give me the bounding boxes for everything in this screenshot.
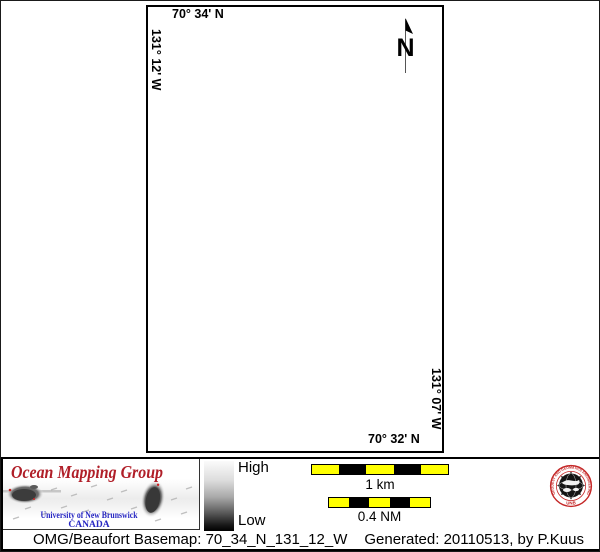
coordinate-label-bottom: 70° 32' N [368, 433, 420, 446]
scalebar-nm [328, 497, 431, 508]
colorbar-low-label: Low [238, 513, 266, 528]
colorbar-high-label: High [238, 460, 269, 475]
coordinate-label-left: 131° 12' W [149, 29, 162, 90]
scalebar-segment [349, 498, 369, 507]
scalebar-segment [394, 465, 421, 474]
scalebar-km [311, 464, 449, 475]
seal-acronym: UNB [566, 500, 576, 505]
north-arrow-icon: N [386, 15, 426, 77]
coordinate-label-right: 131° 07' W [429, 368, 442, 429]
scalebar-segment [329, 498, 349, 507]
scalebar-segment [421, 465, 448, 474]
caption-basemap-text: OMG/Beaufort Basemap: 70_34_N_131_12_W [33, 532, 347, 548]
scalebar-segment [369, 498, 389, 507]
depth-colorbar [204, 461, 234, 531]
scalebar-km-label: 1 km [311, 478, 449, 492]
unb-gge-seal: GEODESY AND GEOMATICS ENGINEERING UNB [549, 463, 593, 509]
scalebar-segment [410, 498, 430, 507]
scalebar-segment [390, 498, 410, 507]
basemap-page: 70° 34' N 131° 12' W 131° 07' W 70° 32' … [0, 0, 600, 552]
coordinate-label-top: 70° 34' N [172, 8, 224, 21]
caption-row: OMG/Beaufort Basemap: 70_34_N_131_12_W G… [33, 532, 593, 548]
north-arrow-letter: N [396, 34, 414, 62]
scalebar-segment [339, 465, 366, 474]
omg-logo-title: Ocean Mapping Group [11, 462, 163, 482]
scalebar-segment [312, 465, 339, 474]
omg-logo-country: CANADA [68, 520, 109, 530]
caption-generated-text: Generated: 20110513, by P.Kuus [364, 532, 584, 548]
omg-logo: Ocean Mapping Group University of New Br… [3, 459, 200, 530]
scalebar-nm-label: 0.4 NM [328, 510, 431, 524]
footer-panel: Ocean Mapping Group University of New Br… [1, 457, 600, 551]
scalebar-segment [366, 465, 393, 474]
